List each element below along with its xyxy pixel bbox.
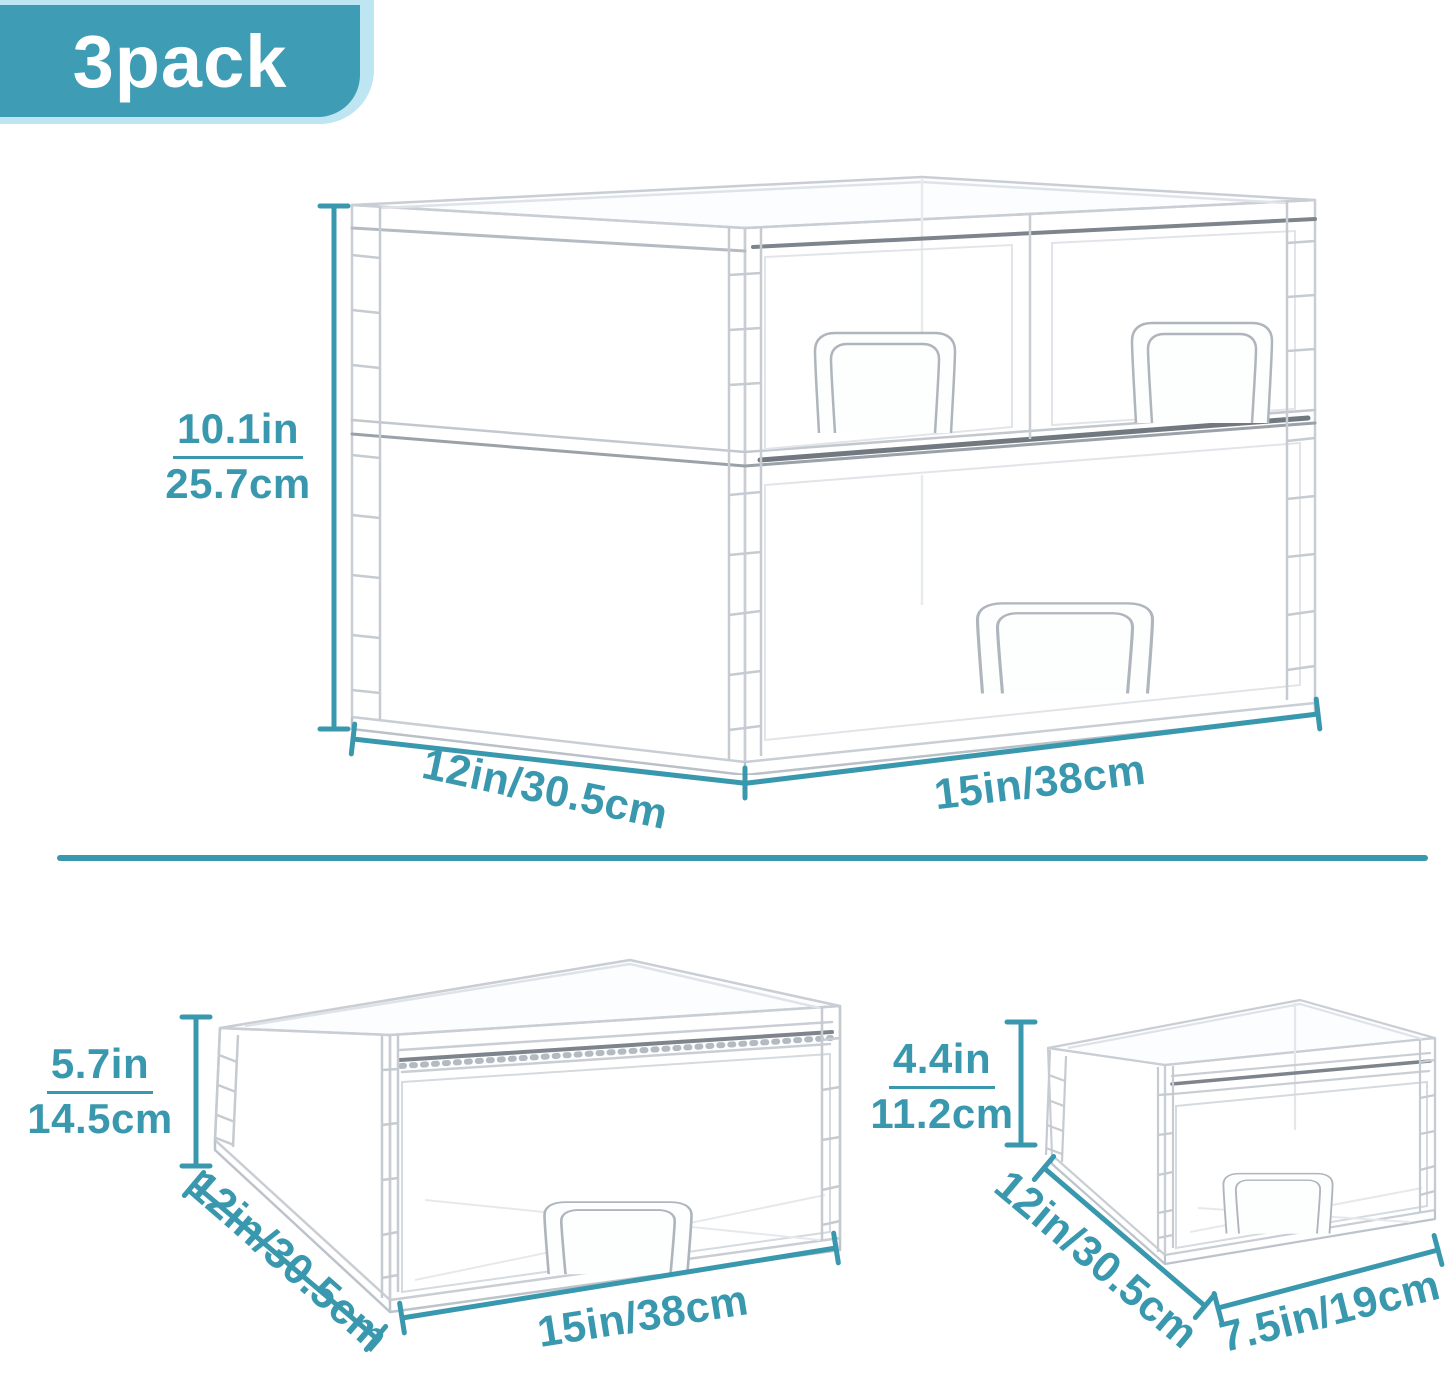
stacked-organizer-illustration [340,155,1340,775]
drawer-handle [978,603,1153,693]
drawer-handle [815,333,955,433]
small-depth-label: 12in/30.5cm [985,1161,1207,1359]
stacked-depth-label: 12in/30.5cm [418,740,672,840]
small-height-cm: 11.2cm [852,1090,1032,1137]
large-depth-label: 12in/30.5cm [178,1162,398,1363]
pack-badge-label: 3pack [73,19,288,104]
large-height-label: 5.7in 14.5cm [10,1040,190,1142]
small-height-inches: 4.4in [889,1035,995,1089]
stacked-height-cm: 25.7cm [138,460,338,507]
pack-badge: 3pack [0,5,360,117]
large-height-inches: 5.7in [47,1040,153,1094]
stacked-height-inches: 10.1in [173,405,303,459]
page-background: 3pack [0,0,1445,1381]
small-height-label: 4.4in 11.2cm [852,1035,1032,1137]
small-width-label: 7.5in/19cm [1215,1261,1445,1363]
section-divider [57,855,1428,861]
drawer-handle [545,1202,692,1274]
drawer-handle [1132,323,1272,423]
large-width-label: 15in/38cm [534,1276,752,1358]
stacked-height-label: 10.1in 25.7cm [138,405,338,507]
stacked-width-label: 15in/38cm [932,746,1149,821]
drawer-handle [1223,1174,1332,1234]
large-height-cm: 14.5cm [10,1095,190,1142]
